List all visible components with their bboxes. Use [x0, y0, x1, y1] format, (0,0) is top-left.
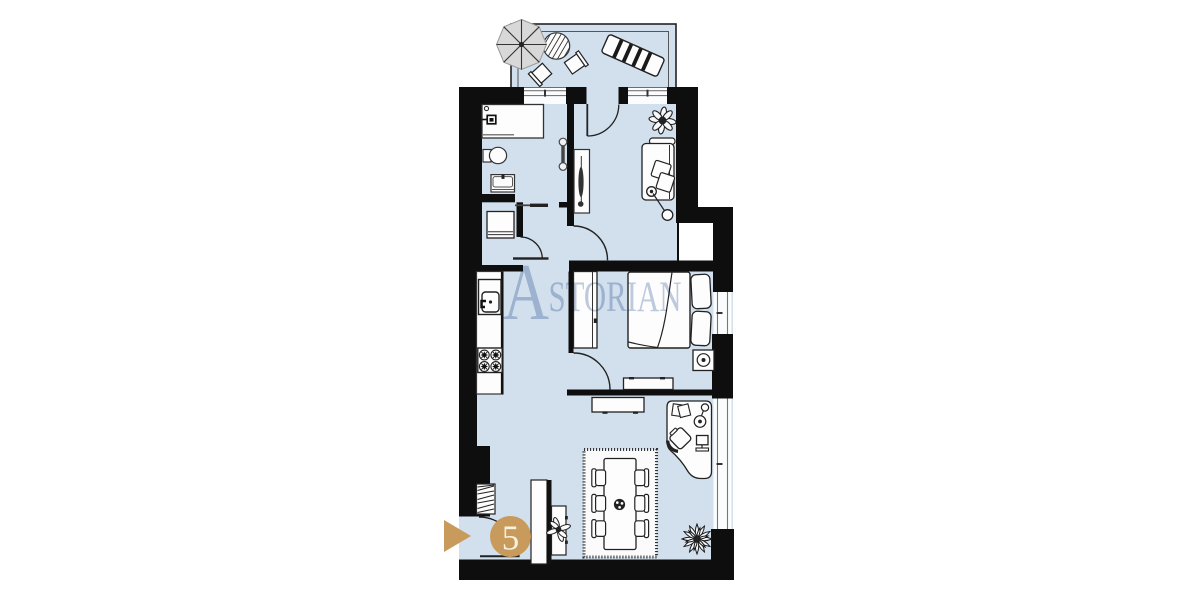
svg-text:STORIAN: STORIAN — [549, 274, 682, 321]
svg-text:A: A — [503, 249, 549, 337]
svg-text:5: 5 — [502, 519, 520, 558]
